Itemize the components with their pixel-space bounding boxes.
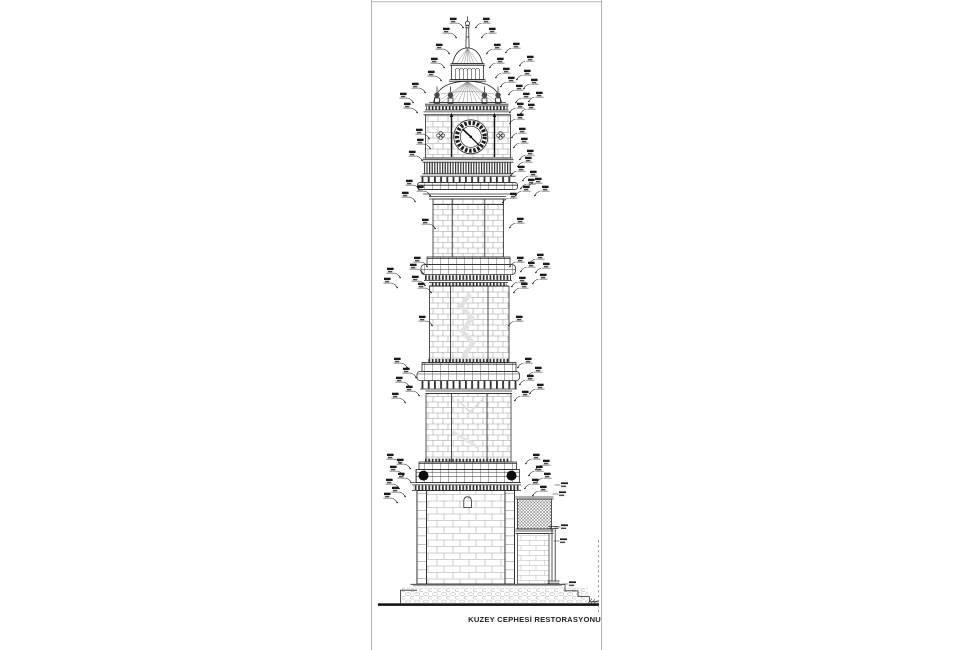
annotation-mark <box>513 138 528 149</box>
annotation-mark <box>511 277 526 288</box>
annotation-mark <box>475 18 491 29</box>
annotation-mark <box>525 454 540 465</box>
cornice-four <box>412 462 521 491</box>
cupola-dome <box>450 48 485 65</box>
annotation-mark <box>520 104 535 115</box>
annotation-mark <box>411 83 426 94</box>
cornice-three <box>417 363 520 394</box>
annotation-mark <box>509 114 524 125</box>
annotation-mark <box>535 460 550 471</box>
annotation-side-label <box>553 491 567 496</box>
annotation-mark <box>396 459 411 470</box>
annotation-mark <box>442 28 457 39</box>
annotation-mark <box>523 79 538 90</box>
annotation-mark <box>402 368 417 379</box>
annotation-mark <box>511 128 526 139</box>
annotation-mark <box>520 262 535 273</box>
drawing-title: KUZEY CEPHESİ RESTORASYONU <box>468 615 601 624</box>
elevation-drawing <box>0 0 976 650</box>
annotation-mark <box>524 479 539 490</box>
annotation-mark <box>517 358 532 369</box>
ornament-ball-left <box>419 471 429 481</box>
clock-face <box>454 120 488 154</box>
annotation-mark <box>486 44 502 55</box>
annotation-mark <box>534 186 549 197</box>
ground-line <box>378 603 599 606</box>
cornice-two <box>421 257 516 286</box>
annotation-side-label <box>563 581 577 586</box>
annotation-mark <box>505 43 520 54</box>
annotation-mark <box>500 77 515 88</box>
balcony-balustrade <box>421 158 516 176</box>
finial-spire <box>465 17 469 49</box>
annotation-mark <box>399 93 414 104</box>
annotation-mark <box>393 358 408 369</box>
drawing-sheet: KUZEY CEPHESİ RESTORASYONU <box>0 0 976 650</box>
quoins-left <box>417 491 427 585</box>
main-dome <box>429 81 506 102</box>
annotation-mark <box>383 278 398 289</box>
annotation-mark <box>408 151 423 162</box>
annotation-mark <box>532 486 547 497</box>
annotation-mark <box>430 58 445 69</box>
annotation-mark <box>508 85 523 96</box>
annotation-mark <box>449 18 464 29</box>
annotation-mark <box>513 283 528 294</box>
annotation-side-label <box>555 482 569 487</box>
annotation-mark <box>435 44 450 55</box>
lantern <box>449 65 486 81</box>
annotation-mark <box>386 268 401 279</box>
annotation-mark <box>529 384 544 395</box>
annotation-mark <box>405 386 420 397</box>
annotation-mark <box>514 391 529 402</box>
annotation-mark <box>383 493 398 504</box>
annotation-mark <box>535 263 550 274</box>
annotation-mark <box>427 71 442 82</box>
annotation-mark <box>508 316 523 327</box>
clock-stage <box>426 113 511 158</box>
quoins-right <box>505 491 515 585</box>
annotation-mark <box>532 274 547 285</box>
annotation-mark <box>528 466 543 477</box>
annotation-mark <box>403 103 418 114</box>
annex-wall <box>518 534 550 585</box>
corbel-cornice <box>418 177 518 199</box>
upper-drum <box>433 199 504 257</box>
middle-shaft <box>428 286 510 363</box>
annex-building <box>516 497 560 584</box>
annotation-mark <box>519 56 534 67</box>
annotation-mark <box>401 192 416 203</box>
lower-shaft <box>425 394 512 463</box>
annex-roof <box>518 499 552 529</box>
annotation-mark <box>528 92 543 103</box>
annotation-mark <box>509 218 524 229</box>
annotation-mark <box>489 58 505 69</box>
annotation-mark <box>516 70 531 81</box>
annotation-mark <box>536 473 551 484</box>
parapet-cornice <box>424 104 511 115</box>
annotation-mark <box>519 375 534 386</box>
base-block <box>417 491 515 585</box>
annotation-mark <box>481 28 497 39</box>
annotation-mark <box>397 473 412 484</box>
annotation-mark <box>391 393 406 404</box>
ornament-ball-right <box>507 471 517 481</box>
plinth <box>401 584 599 604</box>
